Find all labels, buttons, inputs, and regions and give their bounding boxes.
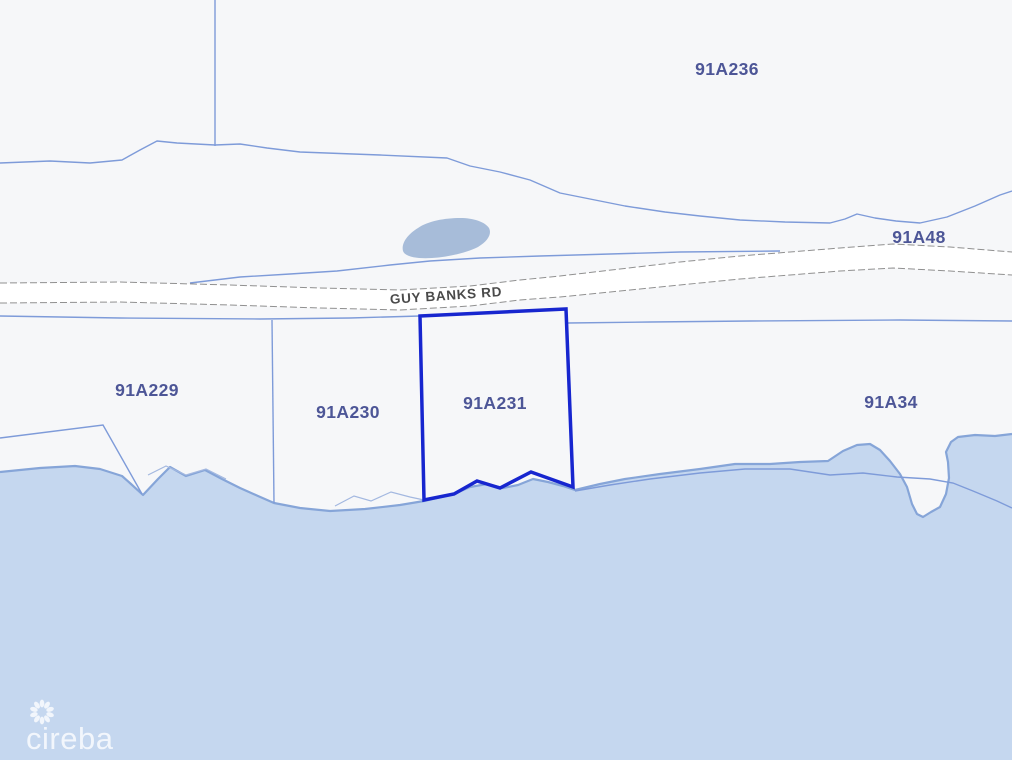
parcel-label-91a34: 91A34 — [864, 392, 918, 412]
parcel-boundary-below-road-east — [568, 320, 1012, 323]
parcel-label-91a236: 91A236 — [695, 59, 759, 79]
parcel-boundary-below-road-west — [0, 316, 420, 319]
pond — [403, 218, 490, 258]
parcel-label-91a230: 91A230 — [316, 402, 380, 422]
parcel-map-svg[interactable]: 91A236 91A48 91A229 91A230 91A231 91A34 … — [0, 0, 1012, 760]
sea-water — [0, 434, 1012, 760]
map-canvas[interactable]: 91A236 91A48 91A229 91A230 91A231 91A34 … — [0, 0, 1012, 760]
parcel-label-91a48: 91A48 — [892, 227, 946, 247]
parcel-label-91a229: 91A229 — [115, 380, 179, 400]
parcel-label-91a231: 91A231 — [463, 393, 527, 413]
parcel-boundary-north — [0, 141, 1012, 223]
road-bed — [0, 244, 1012, 310]
parcel-boundary-229-230 — [272, 320, 274, 503]
watermark-text: cireba — [26, 721, 114, 756]
